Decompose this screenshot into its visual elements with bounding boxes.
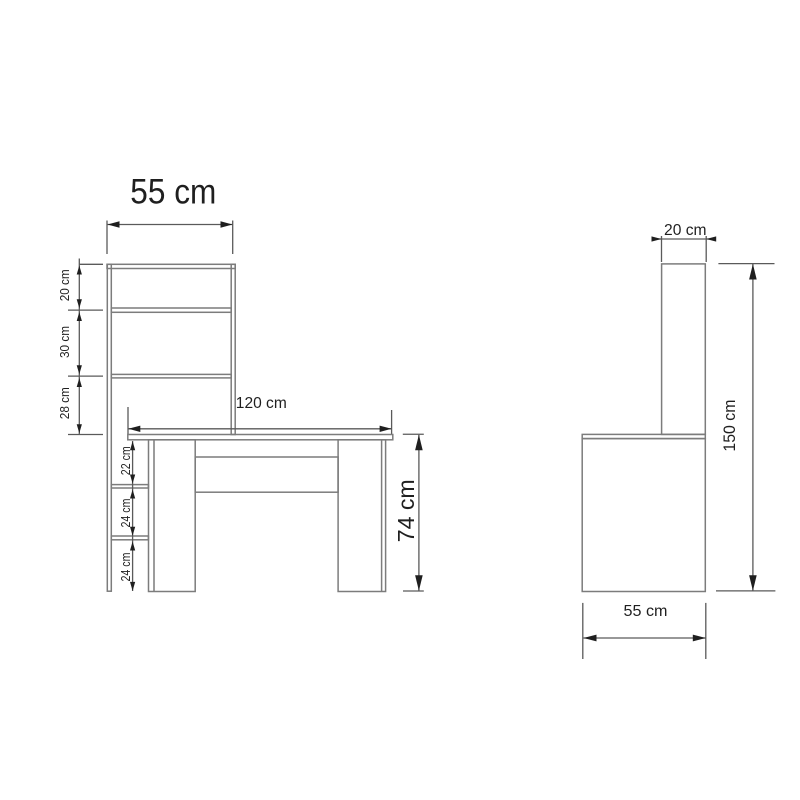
svg-text:74 cm: 74 cm <box>393 479 419 542</box>
svg-text:24 cm: 24 cm <box>119 499 133 528</box>
svg-text:24 cm: 24 cm <box>119 553 133 582</box>
svg-text:28 cm: 28 cm <box>57 387 72 419</box>
svg-text:150 cm: 150 cm <box>720 400 739 452</box>
svg-text:120 cm: 120 cm <box>236 395 287 412</box>
svg-text:30 cm: 30 cm <box>57 326 72 358</box>
svg-text:20 cm: 20 cm <box>664 222 707 239</box>
svg-text:55 cm: 55 cm <box>624 603 668 620</box>
svg-text:55 cm: 55 cm <box>130 173 216 212</box>
svg-text:20 cm: 20 cm <box>57 269 72 301</box>
svg-text:22 cm: 22 cm <box>119 446 133 475</box>
